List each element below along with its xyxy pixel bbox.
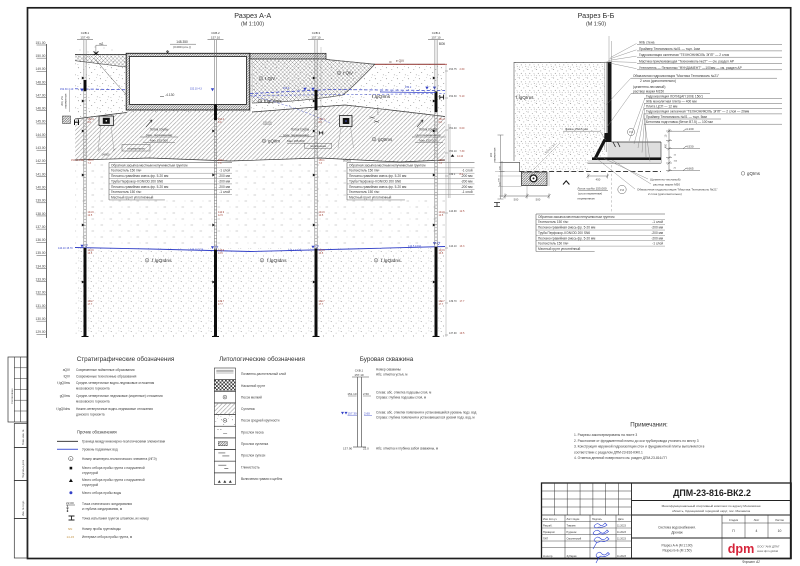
svg-text:Фаска 15х15 мм: Фаска 15х15 мм <box>565 127 587 131</box>
svg-text:-200 мм: -200 мм <box>218 174 230 178</box>
svg-text:14.10: 14.10 <box>457 155 464 158</box>
svg-text:22.00: 22.00 <box>66 501 74 505</box>
svg-text:500: 500 <box>536 198 541 202</box>
svg-text:139.00: 139.00 <box>36 199 46 203</box>
svg-text:gQIms: gQIms <box>747 171 761 176</box>
svg-text:Насыпной грунт: Насыпной грунт <box>241 384 266 388</box>
svg-text:Местный грунт уплотнённый: Местный грунт уплотнённый <box>538 247 581 251</box>
svg-text:ВОК: ВОК <box>439 42 445 46</box>
svg-text:13.3: 13.3 <box>460 245 465 248</box>
svg-text:1. Разрезы законсервированы на: 1. Разрезы законсервированы на листе 3 <box>574 433 637 437</box>
svg-text:раствор марки М50: раствор марки М50 <box>653 182 680 186</box>
svg-text:Суглинок: Суглинок <box>241 407 255 411</box>
svg-text:f,lgQIdns: f,lgQIdns <box>152 258 172 264</box>
svg-text:-200 мм: -200 мм <box>461 185 473 189</box>
svg-text:Включения гравия и щебня: Включения гравия и щебня <box>241 477 282 481</box>
svg-text:Геотекстиль 150 г/м²: Геотекстиль 150 г/м² <box>111 169 141 173</box>
svg-text:Обратная засыпка местным непуч: Обратная засыпка местным непучинистым гр… <box>538 215 614 219</box>
svg-text:147.00: 147.00 <box>36 93 46 97</box>
svg-text:Ж/Б монолитная плита — 400 мм: Ж/Б монолитная плита — 400 мм <box>646 99 697 103</box>
svg-text:Песок средней крупности: Песок средней крупности <box>241 419 280 423</box>
svg-text:Справа: глубина появления и ус: Справа: глубина появления и установившег… <box>376 416 475 420</box>
svg-text:Труба Перфокор-II DN/OD 200 SN: Труба Перфокор-II DN/OD 200 SN6 <box>538 231 590 235</box>
svg-text:СКВ.3: СКВ.3 <box>312 31 321 35</box>
svg-text:22.0: 22.0 <box>363 447 369 451</box>
svg-text:переменная: переменная <box>65 93 68 108</box>
svg-text:Глинистость: Глинистость <box>241 465 260 469</box>
svg-text:Формат А2: Формат А2 <box>742 560 760 564</box>
svg-text:www.dpm.global: www.dpm.global <box>757 549 778 553</box>
svg-text:Лист №док.: Лист №док. <box>567 518 581 521</box>
svg-text:раствор марки М150: раствор марки М150 <box>633 89 664 93</box>
svg-text:переменная: переменная <box>128 146 145 150</box>
svg-text:Взам. инв. №: Взам. инв. № <box>22 429 25 445</box>
svg-text:Прочие обозначения: Прочие обозначения <box>77 430 117 435</box>
svg-text:gQIIm: gQIIm <box>268 139 280 144</box>
svg-text:Литологические обозначения: Литологические обозначения <box>219 355 305 363</box>
svg-text:137.90: 137.90 <box>343 447 353 451</box>
svg-text:-200 мм: -200 мм <box>651 236 663 240</box>
svg-text:-200 мм: -200 мм <box>218 185 230 189</box>
svg-text:Почвенно-растительный слой: Почвенно-растительный слой <box>241 372 286 376</box>
svg-text:СКВ.1: СКВ.1 <box>355 369 364 373</box>
svg-text:Гидроизоляция оклеечная "ТЕХНО: Гидроизоляция оклеечная "ТЕХНОНИКОЛЬ ЭПП… <box>646 110 750 114</box>
svg-text:10: 10 <box>778 529 782 533</box>
svg-text:148.350: 148.350 <box>176 40 188 44</box>
svg-text:и глубина зондирования, м: и глубина зондирования, м <box>82 507 122 511</box>
svg-text:13.5: 13.5 <box>439 252 444 255</box>
svg-text:Геотекстиль 150 г/м²: Геотекстиль 150 г/м² <box>349 169 379 173</box>
svg-text:200: 200 <box>489 152 493 157</box>
svg-text:(дин. переменная): (дин. переменная) <box>146 133 173 137</box>
svg-text:Разраб.: Разраб. <box>543 523 553 527</box>
svg-text:СКВ.1: СКВ.1 <box>81 31 90 35</box>
svg-text:СКВ.4: СКВ.4 <box>432 31 441 35</box>
svg-text:Место отбора пробы грунта с на: Место отбора пробы грунта с нарушенной <box>82 478 145 482</box>
svg-text:Место отбора пробы грунта с на: Место отбора пробы грунта с нарушенной <box>82 466 145 470</box>
svg-text:12.5: 12.5 <box>218 214 223 217</box>
svg-text:145.00: 145.00 <box>36 120 46 124</box>
svg-text:135.00: 135.00 <box>36 251 46 255</box>
svg-text:Стратиграфические обозначения: Стратиграфические обозначения <box>77 355 175 363</box>
svg-text:152.2: 152.2 <box>405 86 412 89</box>
svg-text:157.30: 157.30 <box>348 412 358 416</box>
svg-text:5.10: 5.10 <box>460 95 465 98</box>
svg-text:Труба Перфокор-II DN/OD 200 SN: Труба Перфокор-II DN/OD 200 SN6 <box>111 179 163 183</box>
svg-text:13.5: 13.5 <box>88 252 93 255</box>
svg-text:структурой: структурой <box>82 471 98 475</box>
svg-text:Песчано-гравийная смесь фр. 5-: Песчано-гравийная смесь фр. 5-20 мм <box>111 185 168 189</box>
svg-text:Разрез Б-Б: Разрез Б-Б <box>578 11 615 20</box>
svg-text:Прослои суглинка: Прослои суглинка <box>241 442 268 446</box>
svg-text:157.10: 157.10 <box>211 36 221 40</box>
svg-text:Мастика приклеивающая "Технони: Мастика приклеивающая "Технониколь №27" … <box>639 60 734 64</box>
svg-text:Нижне-четвертичные водно-ледни: Нижне-четвертичные водно-ледниковые отло… <box>76 407 153 411</box>
svg-text:4. Отметка дневной поверхности: 4. Отметка дневной поверхности см. разде… <box>574 456 667 460</box>
svg-text:переменная: переменная <box>494 147 497 162</box>
svg-text:Место отбора пробы воды: Место отбора пробы воды <box>82 491 122 495</box>
svg-text:200, 2%: 200, 2% <box>60 96 64 106</box>
svg-text:-1 слой: -1 слой <box>462 169 473 173</box>
svg-text:Номер скважины: Номер скважины <box>376 368 401 372</box>
svg-text:Руденок: Руденок <box>567 530 578 534</box>
svg-text:Буровая скважина: Буровая скважина <box>360 356 414 363</box>
svg-text:Местный грунт уплотнённый: Местный грунт уплотнённый <box>111 195 154 199</box>
svg-text:Тимаев: Тимаев <box>567 523 577 527</box>
svg-text:Разрез А-А: Разрез А-А <box>234 11 271 20</box>
svg-text:2.50: 2.50 <box>363 392 369 396</box>
svg-text:Обмазочная гидроизоляция "Маст: Обмазочная гидроизоляция "Мастика Технон… <box>637 187 718 191</box>
svg-text:Местный грунт уплотнённый: Местный грунт уплотнённый <box>349 195 392 199</box>
svg-text:Труба Перфокор-II DN/OD 200 SN: Труба Перфокор-II DN/OD 200 SN6 <box>349 179 401 183</box>
svg-text:17.7: 17.7 <box>218 303 223 306</box>
svg-text:Стадия: Стадия <box>729 518 739 522</box>
svg-text:Согласовано: Согласовано <box>10 388 14 404</box>
svg-text:f,lgQIdns: f,lgQIdns <box>267 258 287 264</box>
svg-text:155.000: 155.000 <box>263 122 272 125</box>
svg-text:московского горизонта: московского горизонта <box>76 387 110 391</box>
svg-text:Справа: глубина подошвы слоя,: Справа: глубина подошвы слоя, м <box>376 396 426 400</box>
svg-text:138.00: 138.00 <box>36 212 46 216</box>
svg-text:структурой: структурой <box>82 483 98 487</box>
svg-text:Песчано-гравийная смесь фр. 5-: Песчано-гравийная смесь фр. 5-20 мм <box>111 174 168 178</box>
svg-text:СКВ.2: СКВ.2 <box>211 31 220 35</box>
svg-text:f,lgQIIms: f,lgQIIms <box>57 381 70 385</box>
svg-text:7.30: 7.30 <box>460 150 465 153</box>
svg-text:донского горизонта: донского горизонта <box>76 413 105 417</box>
svg-text:Уровень подземных вод: Уровень подземных вод <box>82 448 118 452</box>
svg-text:133.00: 133.00 <box>36 278 46 282</box>
svg-text:Современные техногенные образо: Современные техногенные образования <box>76 375 137 379</box>
svg-text:(М 1:50): (М 1:50) <box>586 21 606 27</box>
svg-text:142.00: 142.00 <box>36 159 46 163</box>
svg-text:144.00: 144.00 <box>36 133 46 137</box>
svg-text:Подпись и дата: Подпись и дата <box>22 459 25 478</box>
svg-text:2 слоя (дополнительно): 2 слоя (дополнительно) <box>648 192 682 196</box>
svg-text:-1 слой: -1 слой <box>462 190 473 194</box>
svg-text:11.2023: 11.2023 <box>617 537 626 540</box>
svg-text:150.10: 150.10 <box>449 150 457 153</box>
svg-text:Прослои песка: Прослои песка <box>241 430 264 434</box>
svg-text:Средне-четвертичные ледниковые: Средне-четвертичные ледниковые (моренные… <box>76 394 163 398</box>
svg-text:Плита ЦСП — 12 мм: Плита ЦСП — 12 мм <box>646 105 678 109</box>
svg-text:11.2023: 11.2023 <box>617 531 626 534</box>
svg-text:Точка испытания грунтов штампо: Точка испытания грунтов штампом, их номе… <box>82 517 149 521</box>
svg-text:157.10: 157.10 <box>431 36 441 40</box>
svg-text:(дин. переменная): (дин. переменная) <box>283 133 309 137</box>
svg-text:Номер пробы грунта/воды: Номер пробы грунта/воды <box>82 527 122 531</box>
svg-text:Праймер Технониколь №01 — тщл.: Праймер Технониколь №01 — тщл. 1мм <box>639 47 701 51</box>
svg-text:146.00: 146.00 <box>36 107 46 111</box>
svg-text:Ж/Б стена: Ж/Б стена <box>639 41 655 45</box>
svg-text:2.60: 2.60 <box>364 412 370 416</box>
svg-text:gQIIms: gQIIms <box>378 137 393 142</box>
svg-text:Листов: Листов <box>775 518 784 522</box>
svg-text:Разрез Б-Б (М 1:50): Разрез Б-Б (М 1:50) <box>662 549 691 553</box>
svg-text:-4.130: -4.130 <box>685 127 694 131</box>
svg-text:14/500: 14/500 <box>102 153 110 157</box>
svg-text:Обратная засыпка местным непуч: Обратная засыпка местным непучинистым гр… <box>111 163 187 167</box>
svg-text:Средне-четвертичные водно-ледн: Средне-четвертичные водно-ледниковые отл… <box>76 381 155 385</box>
svg-text:144.90: 144.90 <box>449 210 457 213</box>
svg-text:3. Конструкция наружной гидрои: 3. Конструкция наружной гидроизоляции ст… <box>574 445 705 449</box>
svg-text:Н.контр.: Н.контр. <box>543 554 553 558</box>
svg-text:Подпись: Подпись <box>592 518 603 521</box>
svg-text:154.75: 154.75 <box>449 68 457 71</box>
svg-text:12.5: 12.5 <box>460 210 465 213</box>
svg-text:Инв. № подл.: Инв. № подл. <box>22 500 25 516</box>
svg-text:Система водоснабжения.: Система водоснабжения. <box>658 526 696 530</box>
svg-text:-200 мм: -200 мм <box>651 231 663 235</box>
svg-text:tQIV: tQIV <box>64 375 71 379</box>
svg-text:13.5: 13.5 <box>218 252 223 255</box>
svg-text:московского горизонта: московского горизонта <box>76 400 110 404</box>
svg-text:139.70: 139.70 <box>449 300 457 303</box>
svg-text:8.2: 8.2 <box>460 173 464 176</box>
svg-text:144.5 13.91: 144.5 13.91 <box>408 245 422 248</box>
svg-text:148.00: 148.00 <box>36 80 46 84</box>
svg-text:-4.130: -4.130 <box>165 93 175 97</box>
svg-text:Дата: Дата <box>618 518 624 521</box>
svg-text:Абс. отметка устья, м: Абс. отметка устья, м <box>376 373 407 377</box>
svg-text:17.7: 17.7 <box>319 303 324 306</box>
svg-text:Зубарев: Зубарев <box>567 554 578 558</box>
svg-text:19.5: 19.5 <box>460 332 465 335</box>
svg-text:134.00: 134.00 <box>36 264 46 268</box>
svg-text:Номер инженерно-геологического: Номер инженерно-геологического элемента … <box>82 457 157 461</box>
svg-text:Песчано-гравийная смесь фр. 5-: Песчано-гравийная смесь фр. 5-20 мм <box>538 236 595 240</box>
svg-text:Проверил: Проверил <box>543 530 555 534</box>
svg-text:NN: NN <box>68 527 72 531</box>
svg-text:Современные пойменные образова: Современные пойменные образования <box>76 368 135 372</box>
svg-text:152.10 4.3: 152.10 4.3 <box>190 88 202 91</box>
svg-text:Песок мелкий: Песок мелкий <box>241 395 262 399</box>
svg-text:(слои первичная): (слои первичная) <box>578 192 602 196</box>
svg-text:Мах 155.000: Мах 155.000 <box>419 139 437 143</box>
svg-text:12.5: 12.5 <box>319 214 324 217</box>
svg-text:Мах 155.000: Мах 155.000 <box>150 139 168 143</box>
svg-text:-1 слой: -1 слой <box>652 220 663 224</box>
svg-text:Геотекстиль 150 г/м²: Геотекстиль 150 г/м² <box>349 190 379 194</box>
svg-text:140.00: 140.00 <box>36 185 46 189</box>
svg-text:151.40: 151.40 <box>449 127 457 130</box>
svg-text:Песчано-гравийная смесь фр. 5-: Песчано-гравийная смесь фр. 5-20 мм <box>349 174 406 178</box>
svg-text:f,lgQIms: f,lgQIms <box>264 99 282 104</box>
svg-text:130.00: 130.00 <box>36 317 46 321</box>
svg-text:Разрез А-А (М 1:100): Разрез А-А (М 1:100) <box>662 544 693 548</box>
svg-text:t QIV: t QIV <box>343 71 353 76</box>
svg-text:152.30: 152.30 <box>449 95 457 98</box>
svg-text:136.00: 136.00 <box>36 238 46 242</box>
svg-text:Гидроизоляция оклеечная "ТЕХНО: Гидроизоляция оклеечная "ТЕХНОНИКОЛЬ ЭПП… <box>639 53 729 57</box>
svg-text:4: 4 <box>756 529 758 533</box>
svg-text:f,lgQIdns: f,lgQIdns <box>381 258 401 264</box>
svg-text:переменная: переменная <box>310 144 327 148</box>
svg-text:соответствии с разделом ДПМ-23: соответствии с разделом ДПМ-23-816-КЖ0.1 <box>574 450 643 454</box>
svg-text:dpm: dpm <box>728 542 755 556</box>
svg-text:17.7: 17.7 <box>88 303 93 306</box>
svg-text:151.00: 151.00 <box>36 41 46 45</box>
svg-text:Обратная засыпка местным непуч: Обратная засыпка местным непучинистым гр… <box>349 163 425 167</box>
svg-text:Гидроизоляция ЛОГИЦАП 100Е 150: Гидроизоляция ЛОГИЦАП 100Е 150/1 <box>646 94 703 98</box>
svg-text:-200 мм: -200 мм <box>218 179 230 183</box>
svg-text:157.10: 157.10 <box>354 373 364 377</box>
svg-text:Лоток трубы 155.000: Лоток трубы 155.000 <box>577 187 607 191</box>
svg-text:2.60: 2.60 <box>460 68 465 71</box>
svg-text:Дренаж: Дренаж <box>671 531 683 535</box>
svg-text:17.7: 17.7 <box>460 300 465 303</box>
svg-text:151.9: 151.9 <box>283 87 290 90</box>
svg-text:Точка статического зондировани: Точка статического зондирования <box>82 502 132 506</box>
svg-text:12.5: 12.5 <box>439 214 444 217</box>
svg-text:Обмазочная гидроизоляция "Маст: Обмазочная гидроизоляция "Мастика Технон… <box>633 74 720 78</box>
svg-text:Геотекстиль 150 г/м²: Геотекстиль 150 г/м² <box>538 220 568 224</box>
svg-text:-200 мм: -200 мм <box>461 179 473 183</box>
svg-text:Граница между инженерно-геолог: Граница между инженерно-геологическими э… <box>82 440 165 444</box>
svg-text:157.10: 157.10 <box>311 36 321 40</box>
svg-text:132.00: 132.00 <box>36 291 46 295</box>
svg-text:е QIV: е QIV <box>396 59 405 63</box>
svg-text:(Цементно-песчаный): (Цементно-песчаный) <box>650 178 680 182</box>
svg-text:13.5: 13.5 <box>319 252 324 255</box>
svg-text:аQIV: аQIV <box>63 368 71 372</box>
svg-text:2 слоя (дополнительно): 2 слоя (дополнительно) <box>640 79 676 83</box>
svg-text:Примечания:: Примечания: <box>630 421 668 428</box>
svg-text:f,lgQIIdns: f,lgQIIdns <box>56 407 70 411</box>
svg-text:Р13: Р13 <box>629 132 634 134</box>
svg-text:Прослои супеси: Прослои супеси <box>241 454 265 458</box>
svg-text:154.10 4.60: 154.10 4.60 <box>71 159 84 162</box>
svg-text:11.2023: 11.2023 <box>617 524 626 527</box>
svg-text:450: 450 <box>596 178 601 182</box>
svg-text:6.00: 6.00 <box>460 127 465 130</box>
svg-text:Изм. Кол.уч.: Изм. Кол.уч. <box>543 518 558 521</box>
svg-text:-200 мм: -200 мм <box>651 226 663 230</box>
svg-text:Лоток трубы: Лоток трубы <box>150 128 169 132</box>
svg-text:Песчано-гравийная смесь фр. 5-: Песчано-гравийная смесь фр. 5-20 мм <box>349 185 406 189</box>
svg-text:144.1 14.41: 144.1 14.41 <box>288 249 302 252</box>
svg-text:щД: щД <box>99 41 103 45</box>
svg-text:(0.000 (отн.)): (0.000 (отн.)) <box>173 45 191 49</box>
svg-text:144.10 15.70: 144.10 15.70 <box>58 247 73 250</box>
svg-text:Песчано-гравийная смесь фр. 5-: Песчано-гравийная смесь фр. 5-20 мм <box>538 226 595 230</box>
svg-text:Интервал отбора пробы грунта,: Интервал отбора пробы грунта, м <box>82 535 132 539</box>
svg-text:Смоленский: Смоленский <box>567 536 582 540</box>
svg-text:ГИП: ГИП <box>543 536 548 540</box>
svg-text:157.40: 157.40 <box>80 36 90 40</box>
svg-text:144.10: 144.10 <box>449 245 457 248</box>
svg-text:Многофункциональный спортивный: Многофункциональный спортивный комплекс … <box>662 504 761 508</box>
svg-text:17.7: 17.7 <box>439 303 444 306</box>
svg-text:t QIV: t QIV <box>265 76 275 81</box>
svg-text:Утеплитель — Пеноплэкс "ФУНДАМ: Утеплитель — Пеноплэкс "ФУНДАМЕНТ" —100м… <box>639 66 742 70</box>
svg-text:500: 500 <box>514 198 519 202</box>
svg-text:Абс. отметка и глубина забоя с: Абс. отметка и глубина забоя скважины, м <box>376 447 438 451</box>
svg-text:Слева: абс. отметка подошвы сл: Слева: абс. отметка подошвы слоя, м <box>376 391 431 395</box>
svg-text:ДПМ-23-816-ВК2.2: ДПМ-23-816-ВК2.2 <box>673 488 751 498</box>
svg-text:Бетонная подготовка (бетон В7.: Бетонная подготовка (бетон В7.5) — 100 м… <box>646 120 714 124</box>
svg-text:Лист: Лист <box>754 518 761 522</box>
svg-text:150.00: 150.00 <box>36 54 46 58</box>
svg-text:143.00: 143.00 <box>36 146 46 150</box>
svg-text:149.00: 149.00 <box>36 67 46 71</box>
svg-text:Мах 155.000: Мах 155.000 <box>287 139 305 143</box>
svg-text:Геотекстиль 150 г/м²: Геотекстиль 150 г/м² <box>538 242 568 246</box>
svg-text:-1 слой: -1 слой <box>652 242 663 246</box>
svg-text:131.00: 131.00 <box>36 304 46 308</box>
svg-text:141.00: 141.00 <box>36 172 46 176</box>
svg-text:-1 слой: -1 слой <box>219 190 230 194</box>
svg-text:145.10 3.26: 145.10 3.26 <box>190 249 204 252</box>
svg-text:область, Одинцовский городской: область, Одинцовский городской округ, по… <box>672 509 751 513</box>
svg-text:12.5: 12.5 <box>88 214 93 217</box>
svg-text:151.10: 151.10 <box>347 392 357 396</box>
svg-text:(М 1:100): (М 1:100) <box>241 21 264 27</box>
svg-text:f,lgQIms: f,lgQIms <box>372 94 391 100</box>
svg-text:152.30 4.10: 152.30 4.10 <box>60 88 74 91</box>
svg-text:Праймер Технониколь №01 — тщл.: Праймер Технониколь №01 — тщл. 5мм <box>646 115 708 119</box>
svg-text:Геотекстиль 150 г/м²: Геотекстиль 150 г/м² <box>111 190 141 194</box>
svg-text:Лоток трубы: Лоток трубы <box>291 127 310 131</box>
svg-text:Слева: абс. отметки появления: Слева: абс. отметки появления и установи… <box>376 411 477 415</box>
svg-text:137.90: 137.90 <box>449 332 457 335</box>
svg-text:137.00: 137.00 <box>36 225 46 229</box>
svg-text:-1 слой: -1 слой <box>219 169 230 173</box>
svg-text:-4.665: -4.665 <box>685 167 694 171</box>
svg-text:-4.530: -4.530 <box>685 145 694 149</box>
svg-text:11.2023: 11.2023 <box>617 555 626 558</box>
svg-text:129.00: 129.00 <box>36 330 46 334</box>
svg-text:переменная: переменная <box>578 197 595 201</box>
svg-text:Р13: Р13 <box>620 189 625 192</box>
svg-text:14-15: 14-15 <box>67 535 75 539</box>
svg-text:400: 400 <box>665 143 668 148</box>
svg-text:2. Расстояние от фундаментной: 2. Расстояние от фундаментной плиты до о… <box>574 439 699 443</box>
svg-text:gQIIms: gQIIms <box>60 394 71 398</box>
